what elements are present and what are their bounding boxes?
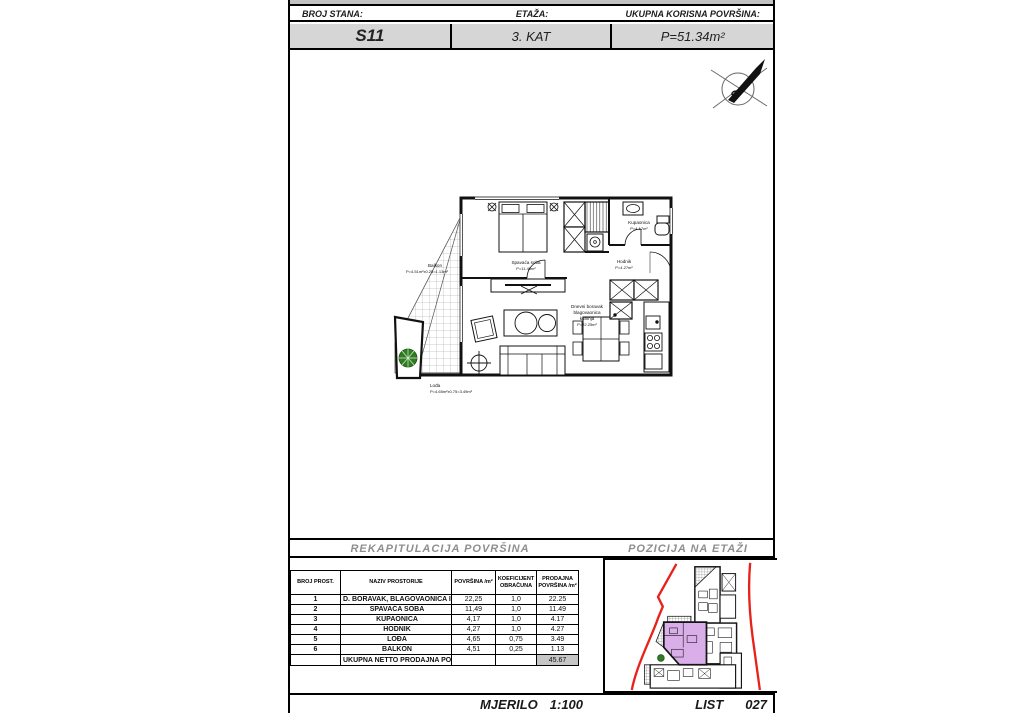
section-title-bar: REKAPITULACIJA POVRŠINA POZICIJA NA ETAŽ…	[290, 538, 773, 558]
footer-bar: MJERILO1:100 LIST027	[290, 693, 773, 713]
apartment-floor-plan: Balkon P=4.51m²x0.25=1.13m² Spavaća soba…	[387, 190, 679, 407]
mjerilo-value: 1:100	[550, 697, 583, 712]
site-plan-svg	[605, 560, 775, 691]
bottom-zone: BROJ PROST. NAZIV PROSTORIJE POVRŠINA /m…	[290, 558, 773, 693]
value-broj-stana: S11	[290, 24, 452, 48]
dnevni-line2: blagovaonica	[573, 310, 601, 315]
top-strip	[290, 0, 773, 6]
page-canvas: BROJ STANA: ETAŽA: UKUPNA KORISNA POVRŠI…	[0, 0, 1024, 718]
col-koeficijent: KOEFICIJENT OBRAČUNA	[496, 571, 537, 595]
table-row: 1D. BORAVAK, BLAGOVAONICA I KUHINJA22,25…	[291, 595, 579, 605]
north-arrow-icon: S	[708, 58, 770, 116]
table-row: 3KUPAONICA4,171,04.17	[291, 615, 579, 625]
list-value: 027	[745, 697, 767, 712]
kupaonica-label: Kupaonica	[628, 220, 650, 225]
hodnik-area: P=4.27m²	[615, 265, 633, 270]
header-label-row: BROJ STANA: ETAŽA: UKUPNA KORISNA POVRŠI…	[290, 8, 773, 22]
label-broj-stana: BROJ STANA:	[290, 8, 452, 20]
table-row: 6BALKON4,510,251.13	[291, 645, 579, 655]
hodnik-label: Hodnik	[617, 259, 632, 264]
balkon-label: Balkon	[428, 263, 442, 268]
value-etaza: 3. KAT	[452, 24, 613, 48]
value-ukupna-povrsina: P=51.34m²	[612, 24, 773, 48]
spavaca-area: P=11.49m²	[516, 266, 536, 271]
wardrobe-and-shaft	[564, 202, 609, 252]
loggia-zone	[395, 317, 423, 378]
col-broj-prost: BROJ PROST.	[291, 571, 341, 595]
col-prodajna: PRODAJNA POVRŠINA /m²	[537, 571, 579, 595]
total-value: 45.67	[537, 655, 579, 666]
dnevni-line3: kuhinja	[580, 316, 595, 321]
table-row: 5LOĐA4,650,753.49	[291, 635, 579, 645]
label-etaza: ETAŽA:	[452, 8, 613, 20]
area-recap-table: BROJ PROST. NAZIV PROSTORIJE POVRŠINA /m…	[290, 570, 579, 666]
header-value-row: S11 3. KAT P=51.34m²	[290, 24, 773, 50]
col-naziv: NAZIV PROSTORIJE	[341, 571, 452, 595]
sheet-number: LIST027	[695, 697, 767, 712]
spavaca-label: Spavaća soba	[511, 260, 541, 265]
dnevni-line1: Dnevni boravak	[571, 304, 604, 309]
table-row: 4HODNIK4,271,04.27	[291, 625, 579, 635]
rekapitulacija-title: REKAPITULACIJA POVRŠINA	[290, 543, 590, 555]
bedroom-furniture	[488, 202, 558, 252]
table-total-row: UKUPNA NETTO PRODAJNA POVRŠINA 45.67	[291, 655, 579, 666]
tree-icon	[657, 655, 664, 662]
table-header: BROJ PROST. NAZIV PROSTORIJE POVRŠINA /m…	[291, 571, 579, 595]
tv-console	[491, 279, 565, 294]
balkon-calc: P=4.51m²x0.25=1.13m²	[406, 269, 449, 274]
lodja-calc: P=4.65m²x0.75=3.49m²	[430, 389, 473, 394]
table-row: 2SPAVAĆA SOBA11,491,011.49	[291, 605, 579, 615]
list-label: LIST	[695, 697, 723, 712]
floor-position-map	[603, 558, 777, 693]
mjerilo-label: MJERILO	[480, 697, 538, 712]
highlighted-unit-s11	[656, 622, 706, 665]
plan-sheet: BROJ STANA: ETAŽA: UKUPNA KORISNA POVRŠI…	[288, 0, 775, 713]
lodja-label: Lođa	[430, 383, 441, 388]
kupaonica-area: P=4.17m²	[630, 226, 648, 231]
floor-plan-area: S	[290, 50, 773, 538]
dnevni-area: P=22.25m²	[577, 322, 597, 327]
total-label: UKUPNA NETTO PRODAJNA POVRŠINA	[341, 655, 452, 666]
label-ukupna-povrsina: UKUPNA KORISNA POVRŠINA:	[612, 8, 773, 20]
col-povrsina: POVRŠINA /m²	[452, 571, 496, 595]
pozicija-title: POZICIJA NA ETAŽI	[603, 543, 773, 555]
